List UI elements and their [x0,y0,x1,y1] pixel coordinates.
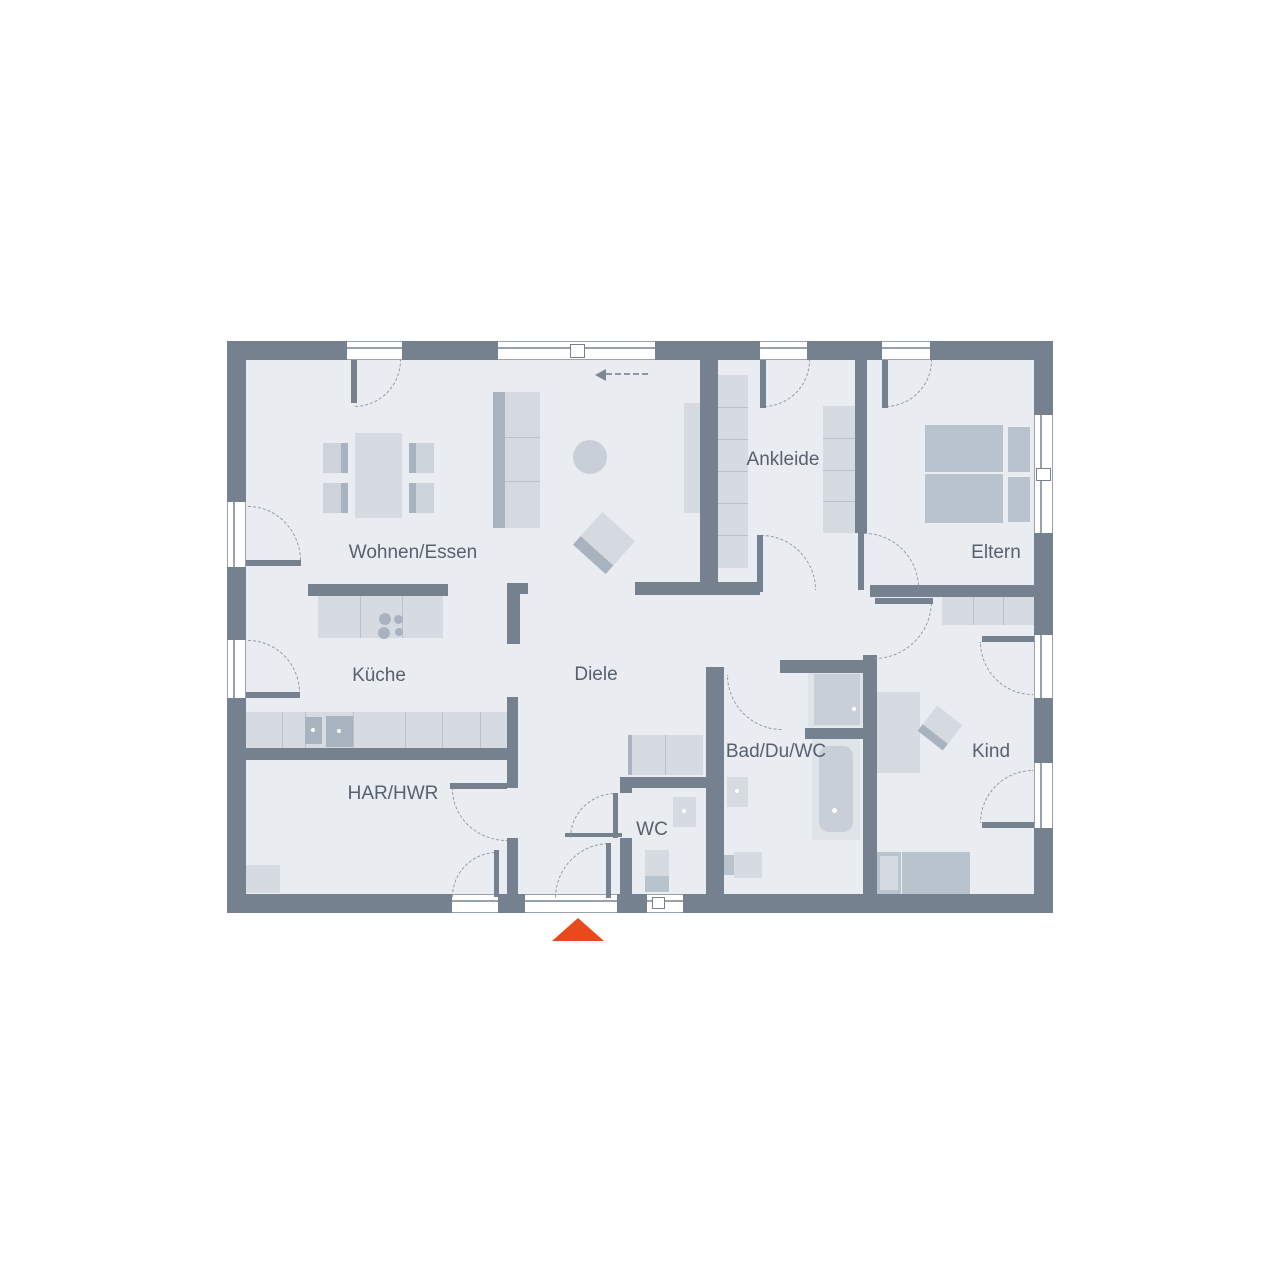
wall [805,728,863,739]
furniture-divider [1003,593,1004,625]
furniture-bed-mattress [925,425,1003,472]
wall [227,567,246,640]
wall [1034,341,1053,415]
furniture-dining-chair [409,483,434,513]
wall [402,341,498,360]
furniture-sofa [493,392,540,528]
furniture-divider [353,712,354,748]
wall [507,697,518,788]
furniture-divider [505,437,540,438]
slide-direction-arrow-line [606,373,648,375]
furniture-nightstand [1008,477,1030,522]
door-leaf [882,360,888,408]
window [882,341,930,360]
room-label: Eltern [971,542,1021,564]
window-handle-symbol [1036,468,1051,481]
wall [635,582,760,595]
door-leaf [982,636,1034,642]
wall [700,360,718,595]
wall [620,838,632,894]
furniture-cooktop-burner [379,613,391,625]
wall [227,698,246,913]
furniture-divider [823,501,855,502]
furniture-divider [718,439,748,440]
wall [807,341,882,360]
furniture-wc-toilet [645,850,669,876]
door-leaf [760,360,766,408]
window [347,341,402,360]
entrance-marker-icon [552,918,604,941]
window [1034,635,1053,698]
wall [683,894,1053,913]
window [760,341,807,360]
furniture-divider [480,712,481,748]
room-label: Kind [972,741,1010,763]
furniture-dot [337,729,341,733]
wall [246,748,518,760]
wall [655,341,760,360]
furniture-divider [405,712,406,748]
wall [498,894,525,913]
furniture-divider [505,481,540,482]
door-leaf [858,533,864,590]
furniture-washing-machine [246,865,280,893]
door-leaf [351,360,357,403]
wall [620,788,632,793]
furniture-divider [973,593,974,625]
wall [227,894,452,913]
furniture-side-table [573,440,607,474]
door-leaf [450,783,507,789]
wall [1034,698,1053,763]
furniture-divider [823,438,855,439]
furniture-dining-chair [323,443,348,473]
room-label: Bad/Du/WC [726,741,826,763]
door-leaf [982,822,1034,828]
furniture-shower-tray [814,674,860,725]
floorplan-canvas: Wohnen/EssenKücheDieleHAR/HWRWCBad/Du/WC… [0,0,1280,1280]
wall [706,667,724,894]
furniture-bed-mattress [925,474,1003,523]
furniture-kitchen-counter [246,712,507,748]
furniture-dining-chair [323,483,348,513]
wall [507,838,518,894]
furniture-sideboard-edge [628,735,632,775]
door-leaf [875,598,933,604]
furniture-desk [875,692,920,773]
furniture-cooktop-burner [395,628,403,636]
furniture-divider [823,470,855,471]
furniture-dot [735,789,739,793]
wall [617,894,647,913]
furniture-divider [718,471,748,472]
furniture-nightstand [1008,427,1030,472]
window [227,640,246,698]
furniture-divider [718,503,748,504]
wall [507,594,520,644]
furniture-divider [360,596,361,638]
room-label: Diele [574,664,617,686]
room-label: Wohnen/Essen [349,542,478,564]
furniture-dot [852,707,856,711]
wall [855,360,867,533]
wall [620,777,707,788]
wall [863,655,877,894]
window [1034,763,1053,828]
furniture-dining-table [355,433,402,518]
door-leaf [613,793,618,838]
furniture-cooktop-burner [378,627,390,639]
furniture-bed-pillow [880,856,898,890]
furniture-divider [442,712,443,748]
room-label: Ankleide [747,449,820,471]
window [227,502,246,567]
furniture-wardrobe [942,593,1034,625]
furniture-dot [832,808,837,813]
room-label: Küche [352,665,406,687]
furniture-divider [718,407,748,408]
furniture-divider [718,535,748,536]
door-leaf [246,692,300,698]
furniture-bath-toilet [734,852,762,878]
door-leaf [246,560,301,566]
furniture-dining-chair [409,443,434,473]
room-label: HAR/HWR [348,783,439,805]
wall [308,584,448,596]
wall [780,660,873,673]
door-leaf [606,843,611,898]
door-leaf [757,535,763,592]
wall [1034,828,1053,913]
furniture-dot [311,728,315,732]
furniture-divider [901,852,902,894]
room-label: WC [636,819,668,841]
furniture-dot [682,809,686,813]
furniture-cooktop-burner [394,615,403,624]
slide-direction-arrow-icon [595,369,606,381]
furniture-bath-toilet-tank [724,855,734,875]
furniture-divider [282,712,283,748]
window-handle-symbol [652,897,665,909]
wall [1034,533,1053,635]
furniture-tv-shelf [684,403,700,513]
wall [227,341,246,502]
furniture-wc-toilet-tank [645,876,669,892]
door-leaf [494,850,499,897]
window-handle-symbol [570,344,585,358]
wall [507,583,528,594]
furniture-divider [665,735,666,775]
